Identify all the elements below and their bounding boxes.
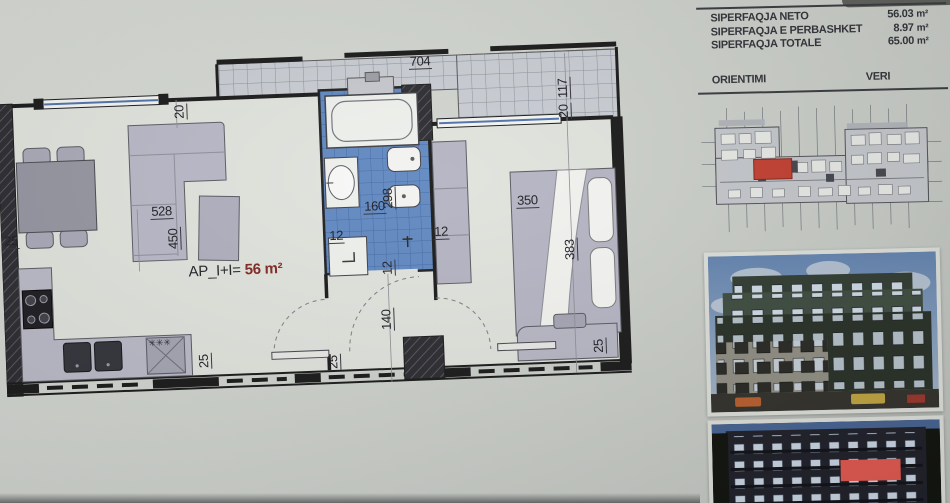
floor-plan-drawing [0, 39, 669, 466]
area-label: SIPERFAQJA TOTALE [711, 36, 864, 51]
apartment-area-label: AP_I+I=56 m² [188, 260, 282, 281]
site-building [715, 116, 929, 207]
area-value: 65.00 [864, 35, 914, 48]
area-value: 56.03 [863, 8, 913, 21]
stool [554, 313, 587, 328]
truck [851, 393, 885, 404]
bidet [388, 185, 420, 208]
cooktop [22, 290, 52, 329]
column [403, 336, 445, 380]
toilet [387, 147, 421, 172]
area-table: SIPERFAQJA NETO 56.03 m² SIPERFAQJA E PE… [710, 7, 939, 53]
building-facade-night [712, 419, 942, 503]
paper-edge-shadow [0, 493, 700, 503]
floor-plan: 7042011720528450252981601212121402525350… [0, 39, 669, 466]
coffee-table [199, 196, 240, 261]
excavator [735, 397, 761, 407]
bathroom-sink [324, 157, 359, 208]
area-unit: m² [914, 22, 939, 34]
info-panel: SIPERFAQJA NETO 56.03 m² SIPERFAQJA E PE… [688, 0, 950, 503]
building-photo-1 [704, 247, 944, 416]
scanned-plan-page: 7042011720528450252981601212121402525350… [0, 0, 950, 503]
area-value: 8.97 [864, 21, 914, 34]
area-unit: m² [914, 35, 939, 47]
highlighted-apartment-facade [840, 459, 900, 482]
bed [510, 168, 621, 336]
divider [698, 87, 948, 95]
highlighted-unit [754, 159, 792, 180]
wardrobe [432, 141, 471, 284]
orientation-label: ORIENTIMI [712, 73, 766, 86]
fridge [146, 337, 185, 374]
orientation-row: ORIENTIMI VERI [712, 69, 940, 86]
building-photo-2 [708, 415, 946, 503]
building-render [708, 251, 939, 412]
apartment-area-value: 56 m² [244, 260, 282, 278]
site-plan [696, 97, 945, 239]
washing-machine [328, 237, 367, 276]
apartment-id: AP_I+I= [188, 262, 241, 281]
orientation-value: VERI [866, 69, 940, 83]
area-unit: m² [913, 8, 938, 20]
